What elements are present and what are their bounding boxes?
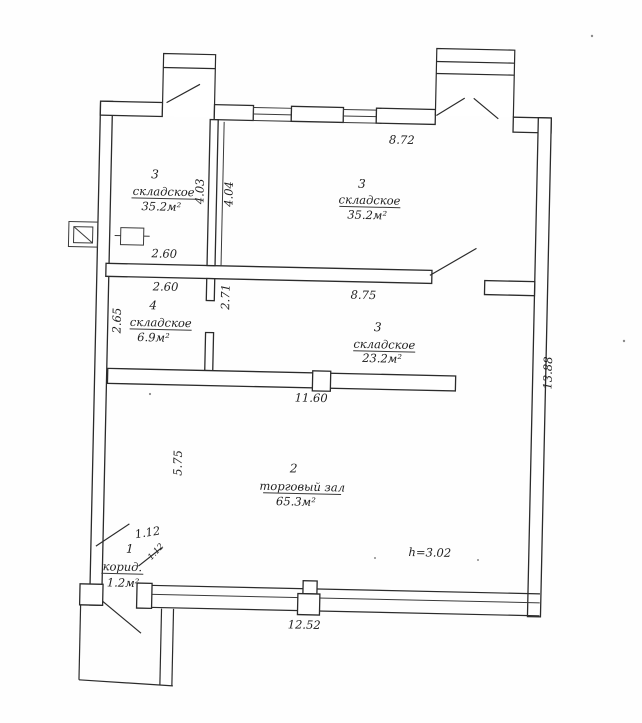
scan-speck bbox=[374, 557, 376, 559]
dim-room-tr-height: 4.04 bbox=[221, 181, 236, 208]
porch-wall-line bbox=[160, 609, 162, 685]
dim-partition-height: 2.71 bbox=[218, 284, 233, 311]
dim-corridor-width: 1.12 bbox=[134, 523, 161, 541]
wall-segment bbox=[100, 101, 162, 116]
room-name: складское bbox=[353, 337, 415, 352]
floor-plan-drawing: 3 складское 35.2м² 3 складское 35.2м² 4 … bbox=[0, 0, 642, 723]
room-name: складское bbox=[133, 184, 195, 199]
room-label-storage-top-left: 3 складское 35.2м² bbox=[131, 167, 197, 214]
dim-corridor-door-width: 1.12 bbox=[146, 542, 166, 563]
room-label-storage-middle: 3 складское 23.2м² bbox=[353, 320, 416, 366]
room-area: 1.2м² bbox=[107, 575, 140, 590]
hatched-box-diagonal bbox=[74, 227, 93, 243]
room-label-corridor: 1 корид. 1.2м² bbox=[101, 541, 144, 590]
stove-body bbox=[120, 228, 143, 245]
room-number: 1 bbox=[126, 542, 134, 556]
column-symbol bbox=[303, 581, 317, 594]
porch-wall-line bbox=[172, 609, 174, 686]
window-band-line bbox=[137, 607, 540, 616]
chimney-left-body bbox=[162, 54, 215, 118]
wall-segment bbox=[206, 279, 214, 301]
floor-plan-tilted-group: 3 складское 35.2м² 3 складское 35.2м² 4 … bbox=[59, 41, 562, 695]
scan-speck bbox=[477, 559, 479, 561]
room-name: складское bbox=[338, 192, 400, 207]
dim-room-tl-height: 4.03 bbox=[192, 178, 207, 205]
room-area: 65.3м² bbox=[276, 494, 316, 509]
room-number: 3 bbox=[374, 320, 382, 334]
stove-symbol bbox=[114, 227, 149, 245]
window-band-line bbox=[137, 594, 540, 603]
room-number: 3 bbox=[358, 177, 366, 191]
room-name: торговый зал bbox=[259, 479, 345, 495]
wall-segment bbox=[484, 281, 534, 296]
wall-segment bbox=[107, 368, 455, 391]
room-area: 35.2м² bbox=[141, 199, 181, 214]
wall-segment bbox=[80, 584, 103, 605]
scan-speck bbox=[149, 393, 151, 395]
room-name: корид. bbox=[103, 559, 143, 574]
column-symbol bbox=[312, 371, 330, 391]
dim-hall-left-height: 5.75 bbox=[170, 450, 185, 476]
wall-segment bbox=[291, 106, 343, 122]
column-symbol bbox=[297, 594, 319, 615]
dim-hall-wall-run: 11.60 bbox=[295, 390, 328, 405]
chimney-right-body bbox=[435, 48, 514, 117]
porch-wall-line bbox=[79, 605, 81, 680]
wall-segment bbox=[90, 101, 113, 605]
door-swing-line bbox=[430, 247, 477, 276]
room-number: 2 bbox=[289, 461, 298, 475]
window-glass-line bbox=[253, 114, 291, 115]
dim-storage-tl-width: 2.60 bbox=[150, 246, 177, 261]
door-swing-line bbox=[102, 601, 142, 633]
walls-group bbox=[59, 41, 553, 694]
porch-wall-line bbox=[79, 680, 173, 686]
room-number: 4 bbox=[148, 298, 157, 312]
dim-storage-small-height: 2.65 bbox=[110, 308, 125, 335]
window-glass-line bbox=[343, 116, 376, 117]
room-area: 35.2м² bbox=[347, 208, 387, 223]
scanned-floor-plan-page: 3 складское 35.2м² 3 складское 35.2м² 4 … bbox=[0, 0, 642, 723]
dim-mid-wall-run: 8.75 bbox=[350, 288, 376, 303]
room-label-storage-top-right: 3 складское 35.2м² bbox=[338, 176, 401, 222]
dim-bottom-window-run: 12.52 bbox=[288, 617, 321, 632]
dim-storage-small-width: 2.60 bbox=[152, 279, 179, 294]
dim-right-wall-height: 13.88 bbox=[540, 356, 555, 389]
wall-segment bbox=[376, 108, 435, 124]
wall-segment bbox=[214, 105, 253, 121]
scan-speck bbox=[591, 35, 593, 37]
wall-segment bbox=[205, 332, 214, 370]
room-name: складское bbox=[130, 315, 192, 330]
hatched-box-symbol bbox=[68, 221, 98, 247]
dim-ceiling-height: h=3.02 bbox=[408, 545, 451, 560]
window-band-line bbox=[137, 585, 540, 594]
room-label-storage-small: 4 складское 6.9м² bbox=[129, 298, 192, 345]
wall-segment bbox=[207, 120, 218, 266]
room-area: 23.2м² bbox=[361, 351, 402, 366]
room-label-trade-hall: 2 торговый зал 65.3м² bbox=[259, 461, 346, 510]
scan-speck bbox=[623, 340, 625, 342]
dim-top-window-run: 8.72 bbox=[389, 132, 415, 147]
room-number: 3 bbox=[151, 167, 159, 181]
room-area: 6.9м² bbox=[137, 330, 170, 345]
